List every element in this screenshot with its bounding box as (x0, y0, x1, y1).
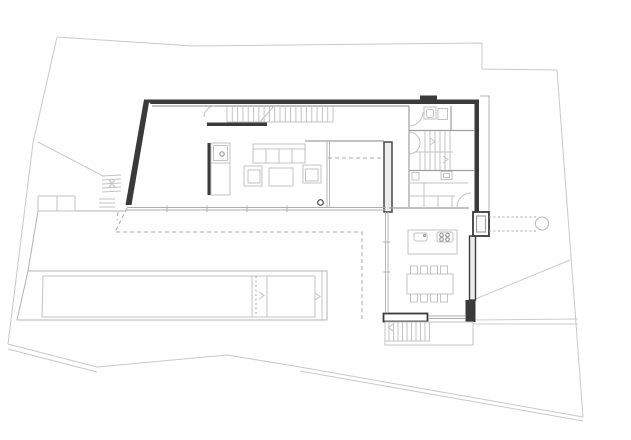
kitchen-island (408, 230, 457, 254)
tv-cabinet (211, 163, 230, 195)
north-stair (204, 106, 333, 126)
upper-floor-dashed-outline (115, 208, 362, 322)
dining-table (407, 274, 453, 294)
west-glass-kitchen (383, 212, 391, 313)
section-arrow (259, 292, 264, 299)
bathroom-door-swing (409, 112, 423, 126)
south-wall-kitchen (384, 314, 428, 322)
freestanding-wall (384, 142, 392, 212)
glazing (127, 141, 391, 313)
bathroom (409, 107, 448, 126)
entry-path (489, 217, 549, 231)
entry-door-swing (204, 106, 215, 117)
floor-plan-svg (0, 0, 631, 440)
utility-fixture (412, 173, 419, 181)
fireplace-unit (211, 143, 230, 195)
entry-column (536, 217, 549, 230)
fireplace-wall (208, 143, 212, 195)
armchair-left (244, 166, 262, 186)
pool (17, 271, 327, 320)
sofa (253, 144, 305, 163)
east-wing (389, 106, 474, 208)
floor-drain (318, 200, 324, 206)
armchair-right (303, 165, 321, 183)
east-wall-corner (466, 300, 476, 322)
utility-sink (441, 172, 452, 180)
utility-room (410, 172, 471, 208)
kitchen-dining (407, 230, 457, 302)
coffee-table (269, 168, 293, 186)
floor-plan-canvas (0, 0, 631, 440)
site-boundary (8, 37, 583, 421)
sink (438, 109, 448, 120)
east-wall-upper (475, 100, 480, 213)
section-arrow (315, 293, 320, 300)
south-exterior-stair (385, 322, 473, 345)
living-room (208, 143, 324, 205)
dining-chairs (411, 266, 448, 302)
south-glass-facade (127, 206, 386, 213)
stair-arrow-up (430, 138, 435, 145)
sideboard (207, 123, 267, 127)
interior-stair (409, 131, 453, 170)
east-glass-wall (327, 141, 330, 207)
dining-set (407, 266, 453, 302)
slanted-west-wall (126, 100, 150, 206)
exterior-walls (126, 96, 490, 323)
terrace-steps-northwest (99, 175, 121, 207)
roof-overhang-line (480, 96, 489, 211)
north-stair-treads (227, 106, 333, 122)
pool-water-edge (42, 276, 315, 317)
east-wall-kitchen (470, 236, 476, 300)
interior-stair-treads (415, 131, 453, 170)
stair-cut-line (260, 106, 274, 122)
utility-door-swing (457, 193, 471, 207)
north-wall (146, 96, 479, 105)
